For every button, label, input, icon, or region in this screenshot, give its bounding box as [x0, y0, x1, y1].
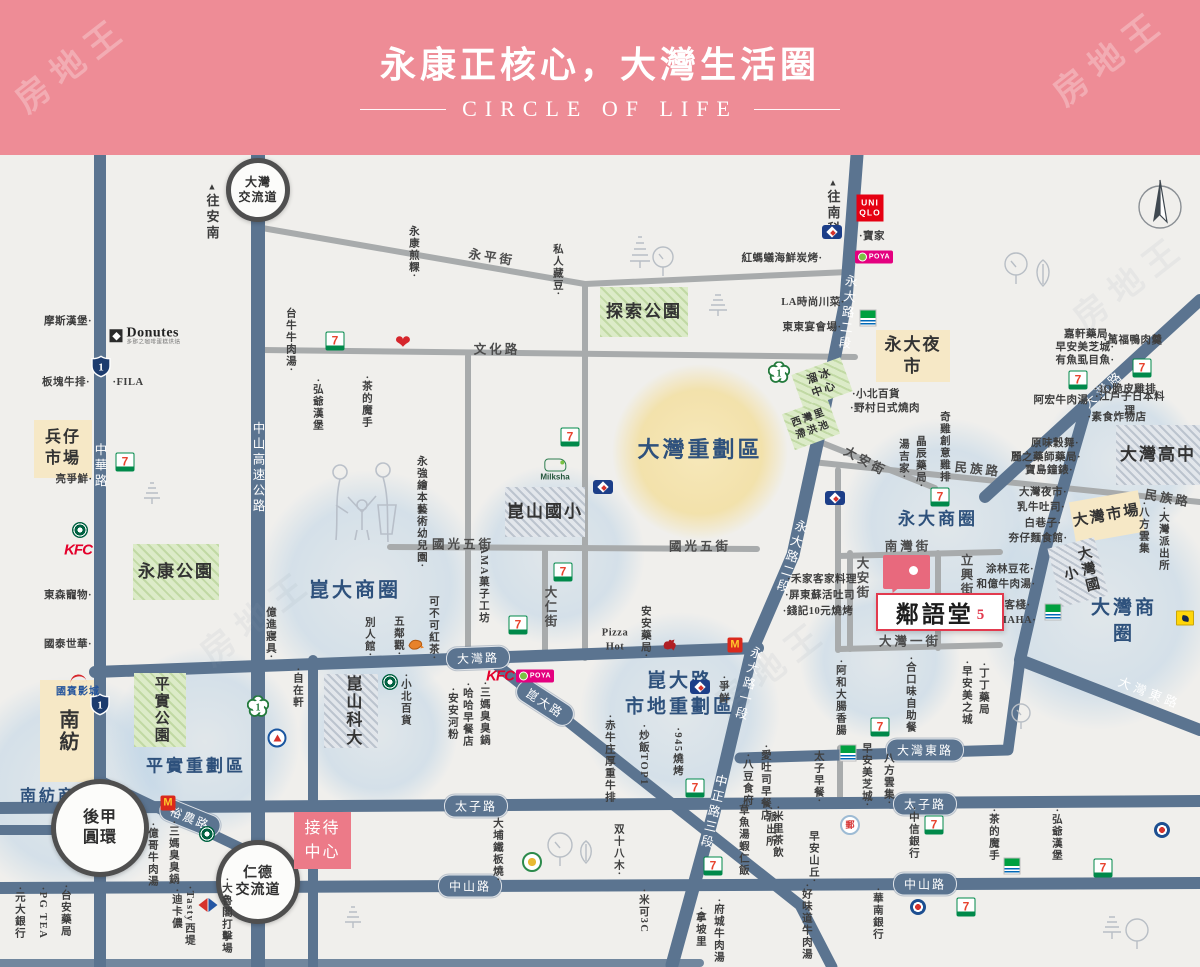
seven-eleven-icon: 7 [554, 563, 573, 582]
pxmart-icon [825, 491, 845, 505]
park-area-label: 探索公園 [606, 301, 682, 323]
pxmart-icon [822, 225, 842, 239]
poi-label: ·迪卡儂 [169, 888, 183, 929]
park-area-label: 西灣里 滯洪池 [790, 406, 833, 443]
mcdonalds-m: M [730, 640, 739, 651]
poi-label: ·PG TEA [35, 887, 49, 940]
seven-eleven-icon: 7 [686, 779, 705, 798]
seven-eleven-icon: 7 [704, 857, 723, 876]
seven-glyph: 7 [515, 619, 522, 632]
park-area-label: 平實公園 [150, 676, 170, 744]
poi-label: 永強繪本藝術幼兒園· [414, 455, 428, 568]
street-name: 大灣一街 [879, 631, 941, 650]
police-badge-icon [522, 852, 542, 872]
market-area: 兵仔 市場 [34, 420, 92, 478]
poi-label: 麗之藥師藥局· [1011, 451, 1081, 465]
blue-route-shield-icon: 1 [91, 356, 111, 383]
poi-label: 五鄰觀· [391, 615, 405, 656]
seven-eleven-icon: 7 [509, 616, 528, 635]
poi-label: 早安山丘· [806, 830, 820, 883]
seven-eleven-icon: 7 [957, 898, 976, 917]
north-triangle-icon: ▲ [208, 183, 217, 192]
poi-label: ·Tasty西堤 [182, 886, 196, 947]
poi-label: ·八方雲集 [1136, 501, 1150, 554]
kfc-wordmark: KFC [486, 668, 514, 685]
poya-icon: POYA [516, 670, 554, 683]
familymart-icon [1045, 604, 1062, 621]
poi-label: ·億哥牛肉湯 [145, 822, 159, 887]
seven-glyph: 7 [877, 721, 884, 734]
poi-label: 東東宴會場· [782, 321, 841, 335]
blue-route-shield-icon: 1 [90, 694, 110, 721]
poi-label: ·米可3C [636, 889, 650, 934]
poi-label: ·炒飯TOP1 [636, 724, 650, 786]
poi-label: 早安美芝城· [859, 742, 873, 807]
poi-label: 寶島鐘錶· [1025, 464, 1073, 478]
district-label: 崑大商圈 [309, 578, 401, 605]
poi-label: ·早安美之城 [959, 660, 973, 725]
poi-label: 國泰世華· [44, 638, 92, 652]
poi-label: ·萬福鴨肉羹 [1103, 334, 1162, 348]
district-label: 大灣商圈 [1086, 595, 1162, 646]
poya-wordmark: POYA [869, 254, 890, 261]
seven-glyph: 7 [931, 819, 938, 832]
seven-glyph: 7 [332, 335, 339, 348]
poi-label: ·三媽臭臭鍋 [477, 681, 491, 746]
seven-eleven-icon: 7 [1094, 859, 1113, 878]
poi-label: 摩斯漢堡· [44, 315, 92, 329]
seven-glyph: 7 [1075, 374, 1082, 387]
road-name-pill: 中山路 [893, 873, 957, 896]
road-name-pill: 大灣東路 [886, 739, 964, 762]
poi-label: ·合口味自助餐 [903, 656, 917, 733]
school-area: 崑山國小 [505, 487, 585, 537]
donutes-subtext: 多那之咖啡蛋糕烘焙 [126, 340, 180, 346]
poi-label: 大埔鐵板燒· [490, 817, 504, 882]
poi-label: 有魚虱目魚· [1055, 354, 1114, 368]
poi-label: 私人藏豆· [550, 243, 564, 296]
starbucks-icon [72, 522, 88, 538]
title-rule-right [754, 109, 840, 110]
district-label: 永大商圈 [898, 509, 978, 532]
poi-label: 紅螞蟻海鮮炭烤· [741, 252, 822, 266]
park-area: 探索公園 [600, 287, 688, 337]
poi-label: ·大灣派出所 [1156, 506, 1170, 571]
poi-label: ·屏東蘇活吐司 [785, 589, 855, 603]
poi-label: ·素食炸物店 [1087, 411, 1146, 425]
district-label: 大灣重劃區 [637, 435, 762, 465]
mcdonalds-icon: M [728, 638, 743, 653]
road-name-pill: 崑大路 [512, 676, 578, 730]
poi-label: 乳牛吐司· [1017, 501, 1065, 515]
park-area: 永康公園 [133, 544, 219, 600]
taiyaki-snack-icon [408, 638, 425, 651]
sales-center-box: 接待 中心 [294, 812, 351, 869]
poi-label: ·寶家 [859, 230, 885, 244]
milksha-icon: Milksha [540, 459, 569, 482]
familymart-icon [860, 310, 877, 327]
market-area: 大灣市場 [1069, 490, 1145, 544]
seven-eleven-icon: 7 [116, 453, 135, 472]
district-label: 平實重劃區 [146, 756, 246, 779]
poi-label: 原味穀舞· [1031, 437, 1079, 451]
street-name: 文化路 [474, 339, 521, 358]
poi-label: ·米里茶飲 [770, 805, 784, 858]
seven-glyph: 7 [567, 431, 574, 444]
road-name-pill: 太子路 [893, 793, 957, 816]
school-area-label: 崑山國小 [507, 501, 583, 523]
seven-glyph: 7 [1100, 862, 1107, 875]
park-area: 平實公園 [134, 673, 186, 747]
poi-label: ·三媽臭臭鍋 [166, 820, 180, 885]
street-name: 南灣街 [885, 536, 932, 555]
post-char: 郵 [845, 821, 854, 830]
site-name: 鄰語堂 [896, 595, 974, 629]
huanan-bank-icon [1154, 822, 1170, 838]
seven-eleven-icon: 7 [1069, 371, 1088, 390]
starbucks-icon [199, 826, 215, 842]
north-triangle-icon: ▲ [829, 179, 838, 188]
poi-label: ·爭鮮 [716, 675, 730, 704]
poi-label: 太子早餐· [811, 750, 825, 803]
electronics-store-icon [1176, 611, 1194, 626]
header-banner: 永康正核心，大灣生活圈 CIRCLE OF LIFE [0, 0, 1200, 155]
poi-label: ·野村日式燒肉 [850, 402, 920, 416]
poi-label: ·禾家客家料理 [787, 573, 857, 587]
poi-label: ·自在軒 [290, 667, 304, 708]
poi-label: 台牛牛肉湯· [283, 307, 297, 372]
park-area-label: 永康公園 [138, 561, 214, 583]
donutes-wordmark: Donutes [126, 326, 180, 340]
heart-logo-icon: ❤ [395, 334, 411, 353]
poi-label: 別人館· [362, 616, 376, 657]
poi-label: ·茶的魔手 [359, 375, 373, 428]
site-number: 5 [977, 607, 985, 624]
post-office-icon: 郵 [840, 815, 860, 835]
milksha-wordmark: Milksha [540, 473, 569, 482]
steakhouse-bull-icon [662, 639, 679, 652]
street-name: 民族路 [954, 456, 1002, 480]
poi-label: ·丁丁藥局 [976, 662, 990, 715]
seven-eleven-icon: 7 [925, 816, 944, 835]
seven-glyph: 7 [560, 566, 567, 579]
seven-eleven-icon: 7 [871, 718, 890, 737]
kfc-icon: KFC [486, 668, 514, 685]
poi-label: 夯仔麵食館· [1008, 532, 1067, 546]
poi-label: 双十八木· [611, 823, 625, 876]
poi-label: 亮爭鮮· [55, 473, 92, 487]
shield-number: 1 [97, 700, 103, 712]
poi-label: ·哈哈早餐店 [460, 682, 474, 747]
poi-label: 安安藥局· [638, 605, 652, 658]
road-name-on-road: 中山高速公路 [249, 422, 268, 515]
street-name: 大安街 [841, 441, 891, 480]
pxmart-icon [593, 480, 613, 494]
market-area: 永大夜市 [876, 330, 950, 382]
poi-label: ·台安藥局 [58, 884, 72, 937]
location-map-poster: 探索公園永康公園平實公園溜冰 中心西灣里 滯洪池兵仔 市場永大夜市大灣市場南紡崑… [0, 0, 1200, 967]
shield-number: 1 [256, 703, 261, 714]
poi-label: LA時尚川菜· [781, 296, 845, 310]
poi-label: 涂林豆花· [986, 563, 1034, 577]
shield-number: 1 [777, 369, 782, 380]
site-dot [909, 566, 918, 575]
kfc-wordmark: KFC [64, 542, 92, 559]
site-name-callout: 鄰語堂 5 [876, 593, 1004, 631]
poi-label: ·好味道牛肉湯 [799, 883, 813, 960]
seven-eleven-icon: 7 [1133, 359, 1152, 378]
cpc-gas-icon [268, 729, 287, 748]
seven-eleven-icon: 7 [326, 332, 345, 351]
poi-label: 八方雲集· [881, 752, 895, 805]
ambassador-wordmark: 國賓影城 [56, 683, 100, 698]
poster-subtitle: CIRCLE OF LIFE [462, 96, 738, 122]
poi-label: 白巷子· [1024, 517, 1061, 531]
site-location-block [883, 555, 930, 589]
poi-label: 阿宏牛肉湯· [1033, 394, 1092, 408]
poi-label: 湯吉家· [896, 438, 910, 479]
poi-label: 可不可紅茶· [426, 595, 440, 660]
road-name-on-road: 中華路 [91, 443, 110, 490]
green-route-shield-icon: 1 [768, 362, 790, 389]
poi-label: Pizza Hot [602, 626, 628, 653]
poi-label: ·元大銀行 [12, 886, 26, 939]
poi-label: ·小北百貨 [852, 388, 900, 402]
poi-label: ·拿坡里 [693, 906, 707, 947]
poi-label: 億進寢具· [263, 606, 277, 659]
market-area-label: 兵仔 市場 [45, 428, 81, 470]
green-route-shield-icon: 1 [247, 696, 269, 723]
street-name: 國光五街 [669, 536, 731, 555]
street-name: 立興街 [957, 553, 976, 597]
poi-label: AMA菓子工坊 [476, 546, 490, 624]
seven-glyph: 7 [937, 491, 944, 504]
poi-label: ·阿和大腸香腸 [833, 659, 847, 736]
poi-label: ·府城牛肉湯 [711, 898, 725, 963]
carrefour-icon [199, 898, 218, 912]
direction-marker: ▲往安南 [203, 183, 222, 242]
poi-label: 晶辰藥局· [913, 435, 927, 488]
seven-eleven-icon: 7 [561, 428, 580, 447]
poster-title: 永康正核心，大灣生活圈 [0, 36, 1200, 88]
title-rule-left [360, 109, 446, 110]
poya-icon: POYA [855, 251, 893, 264]
poi-label: ·中信銀行 [906, 806, 920, 859]
poi-label: ·安安河粉 [445, 687, 459, 740]
poi-label: ·大魯閣打擊場 [219, 877, 233, 954]
pxmart-icon [690, 680, 710, 694]
poi-label: 永康煎粿· [406, 225, 420, 278]
seven-glyph: 7 [1139, 362, 1146, 375]
ambassador-cinema-icon: 國賓影城 [56, 675, 100, 698]
school-area: 崑山科大 [324, 674, 378, 748]
market-area-label: 大灣市場 [1072, 501, 1142, 532]
poi-label: ·弘爺漢堡 [1049, 808, 1063, 861]
poi-label: ·赤牛庄厚重牛排 [602, 714, 616, 803]
familymart-icon [840, 745, 857, 762]
poi-label: ·華南銀行 [870, 887, 884, 940]
poi-label: ·945燒烤 [670, 727, 684, 776]
poi-label: ·錢記10元燒烤 [783, 605, 854, 619]
road-name-on-road: 大灣東路 [1116, 671, 1184, 712]
shield-number: 1 [98, 362, 104, 374]
street-name: 大仁街 [541, 585, 560, 629]
seven-glyph: 7 [710, 860, 717, 873]
poya-wordmark: POYA [530, 673, 551, 680]
interchange-circle: 大灣 交流道 [226, 158, 290, 222]
poi-label: 板塊牛排· [42, 376, 90, 390]
school-area-label: 崑山科大 [341, 675, 362, 747]
park-area-label: 溜冰 中心 [805, 365, 839, 401]
interchange-circle: 後甲 圓環 [51, 779, 149, 877]
familymart-icon [1004, 858, 1021, 875]
seven-glyph: 7 [692, 782, 699, 795]
market-area-label: 南紡 [54, 709, 80, 753]
kfc-icon: KFC [64, 542, 92, 559]
market-area-label: 永大夜市 [876, 334, 950, 378]
seven-eleven-icon: 7 [931, 488, 950, 507]
uniqlo-icon: UNIQLO [857, 195, 884, 222]
road-name-on-road: 永大路二段 [834, 273, 861, 352]
huanan-bank-icon [910, 899, 926, 915]
mcdonalds-icon: M [161, 796, 176, 811]
poi-label: ·小北百貨 [398, 673, 412, 726]
poi-label: 和億牛肉湯· [976, 578, 1035, 592]
seven-glyph: 7 [963, 901, 970, 914]
poi-label: ·茶的魔手 [986, 808, 1000, 861]
poi-label: 東森寵物· [44, 589, 92, 603]
school-area: 大灣高中 [1116, 425, 1200, 485]
donutes-icon: Donutes多那之咖啡蛋糕烘焙 [109, 326, 180, 346]
poi-label: ·FILA [112, 376, 143, 390]
street-name: 永平街 [468, 243, 517, 269]
direction-label: 往安南 [203, 194, 222, 242]
poi-label: ·弘爺漢堡 [310, 378, 324, 431]
poi-label: 大灣夜市· [1019, 486, 1067, 500]
school-area-label: 大灣高中 [1120, 444, 1196, 466]
park-area: 西灣里 滯洪池 [782, 398, 840, 450]
uniqlo-bottom: QLO [859, 208, 880, 218]
road-name-pill: 太子路 [444, 795, 508, 818]
mcdonalds-m: M [163, 798, 172, 809]
poi-label: ·草魚湯蝦仁飯 [736, 799, 750, 876]
seven-glyph: 7 [122, 456, 129, 469]
starbucks-icon [382, 674, 398, 690]
poi-label: 奇雞創意雞排 [937, 411, 951, 483]
